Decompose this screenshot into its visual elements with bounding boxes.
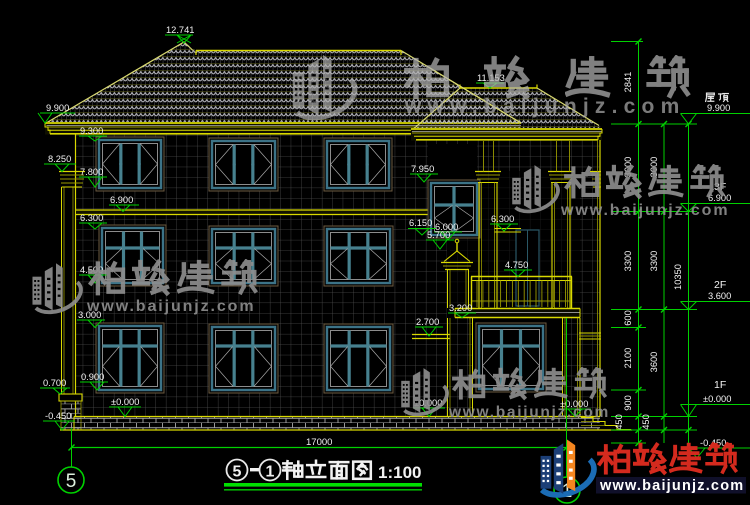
svg-text:www.baijunjz.com: www.baijunjz.com (448, 404, 610, 421)
svg-text:7.800: 7.800 (80, 167, 103, 177)
svg-text:2F: 2F (714, 279, 726, 291)
svg-text:6.900: 6.900 (110, 195, 133, 205)
svg-text:900: 900 (623, 395, 633, 411)
svg-text:6.150: 6.150 (409, 218, 432, 228)
svg-text:0.900: 0.900 (81, 372, 104, 382)
svg-text:450: 450 (614, 414, 624, 430)
svg-text:3300: 3300 (649, 251, 659, 272)
svg-text:5: 5 (233, 464, 242, 481)
svg-text:1F: 1F (714, 379, 726, 391)
svg-text:9.900: 9.900 (46, 103, 69, 113)
svg-text:±0.000: ±0.000 (111, 397, 139, 407)
svg-text:6.300: 6.300 (80, 213, 103, 223)
svg-text:www.baijunjz.com: www.baijunjz.com (599, 478, 744, 494)
svg-text:3.200: 3.200 (449, 303, 472, 313)
svg-text:-0.450: -0.450 (45, 411, 71, 421)
svg-text:3600: 3600 (649, 352, 659, 373)
svg-text:1: 1 (266, 464, 275, 481)
svg-text:9.300: 9.300 (80, 126, 103, 136)
svg-text:5: 5 (66, 471, 77, 492)
svg-text:4.750: 4.750 (505, 260, 528, 270)
svg-text:17000: 17000 (306, 437, 332, 448)
svg-text:3300: 3300 (623, 251, 633, 272)
svg-text:8.250: 8.250 (48, 154, 71, 164)
svg-text:www.baijunjz.com: www.baijunjz.com (86, 298, 256, 315)
svg-text:±0.000: ±0.000 (703, 394, 731, 404)
svg-text:9.900: 9.900 (707, 103, 730, 113)
svg-text:0.700: 0.700 (43, 378, 66, 388)
svg-text:12.741: 12.741 (166, 25, 194, 35)
svg-text:2100: 2100 (623, 348, 633, 369)
svg-text:2.700: 2.700 (416, 317, 439, 327)
svg-text:600: 600 (623, 310, 633, 326)
svg-text:10350: 10350 (673, 264, 683, 290)
svg-text:www.baijunjz.com: www.baijunjz.com (404, 95, 685, 118)
svg-text:2841: 2841 (623, 72, 633, 93)
svg-text:3.600: 3.600 (708, 291, 731, 301)
svg-text:5.700: 5.700 (427, 230, 450, 240)
svg-text:www.baijunjz.com: www.baijunjz.com (560, 202, 730, 219)
svg-text:450: 450 (641, 414, 651, 430)
svg-text:1:100: 1:100 (378, 463, 421, 482)
svg-text:7.950: 7.950 (411, 164, 434, 174)
svg-text:6.300: 6.300 (491, 214, 514, 224)
